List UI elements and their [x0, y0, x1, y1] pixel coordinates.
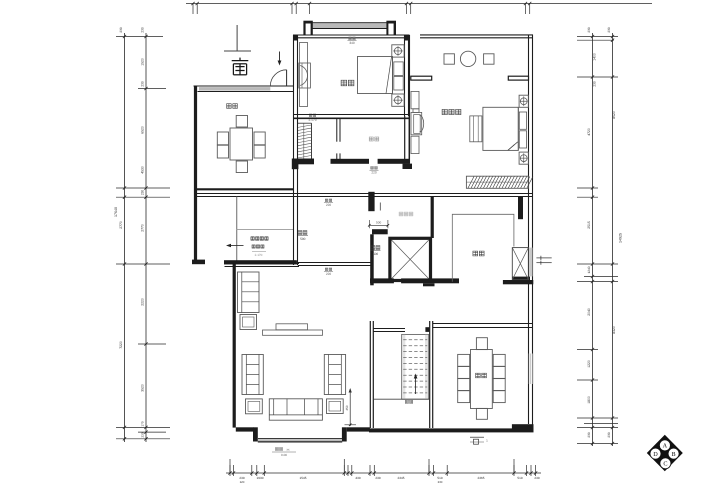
- svg-text:D: D: [653, 451, 658, 458]
- svg-text:450: 450: [345, 405, 349, 410]
- svg-text:4720: 4720: [587, 128, 591, 136]
- svg-text:0.00: 0.00: [281, 453, 287, 457]
- svg-text:230: 230: [593, 81, 597, 87]
- svg-text:B: B: [672, 451, 676, 458]
- svg-text:230: 230: [587, 27, 591, 33]
- svg-text:8520: 8520: [612, 111, 616, 119]
- svg-text:510: 510: [517, 476, 522, 480]
- svg-text:230: 230: [140, 432, 144, 437]
- svg-text:2515: 2515: [587, 221, 591, 229]
- svg-text:1520: 1520: [140, 58, 144, 66]
- svg-text:1800: 1800: [587, 396, 591, 404]
- svg-text:340: 340: [349, 41, 355, 45]
- svg-text:220: 220: [326, 272, 332, 276]
- svg-text:2220: 2220: [140, 298, 144, 306]
- svg-text:2040: 2040: [587, 308, 591, 316]
- svg-text:2770: 2770: [119, 221, 123, 229]
- svg-text:4530: 4530: [140, 166, 144, 174]
- svg-text:7220: 7220: [119, 341, 123, 349]
- svg-text:17640: 17640: [114, 207, 118, 217]
- svg-text:500: 500: [300, 237, 306, 241]
- svg-text:230: 230: [375, 476, 380, 480]
- svg-text:220: 220: [326, 203, 332, 207]
- svg-text:1400: 1400: [593, 53, 597, 61]
- svg-text:230: 230: [119, 27, 123, 33]
- svg-text:1930: 1930: [257, 476, 264, 480]
- svg-text:2770: 2770: [140, 224, 144, 232]
- svg-text:230: 230: [239, 476, 244, 480]
- svg-text:240: 240: [438, 480, 443, 484]
- svg-text:500: 500: [376, 220, 381, 224]
- svg-text:230: 230: [140, 190, 144, 196]
- svg-text:C: C: [663, 461, 667, 468]
- svg-text:2345: 2345: [398, 476, 405, 480]
- svg-text:2.170: 2.170: [255, 253, 263, 257]
- svg-text:3520: 3520: [140, 384, 144, 392]
- svg-text:xx: xx: [287, 448, 291, 452]
- svg-text:14925: 14925: [619, 233, 623, 243]
- svg-text:230: 230: [140, 27, 144, 33]
- svg-text:230: 230: [607, 432, 611, 438]
- svg-text:500: 500: [373, 252, 379, 256]
- svg-text:2365: 2365: [478, 476, 485, 480]
- svg-text:1220: 1220: [587, 360, 591, 368]
- svg-text:230: 230: [587, 432, 591, 438]
- svg-text:A: A: [663, 443, 668, 450]
- svg-text:1545: 1545: [300, 476, 307, 480]
- svg-text:220: 220: [371, 171, 377, 175]
- svg-text:230: 230: [607, 27, 611, 33]
- svg-text:8320: 8320: [612, 326, 616, 334]
- svg-text:230: 230: [534, 476, 539, 480]
- svg-text:170: 170: [140, 421, 144, 426]
- svg-text:1240: 1240: [587, 266, 591, 273]
- svg-text:430: 430: [355, 476, 360, 480]
- svg-text:6520: 6520: [140, 126, 144, 134]
- svg-text:230: 230: [140, 81, 144, 87]
- svg-text:510: 510: [437, 476, 442, 480]
- svg-text:120: 120: [240, 480, 245, 484]
